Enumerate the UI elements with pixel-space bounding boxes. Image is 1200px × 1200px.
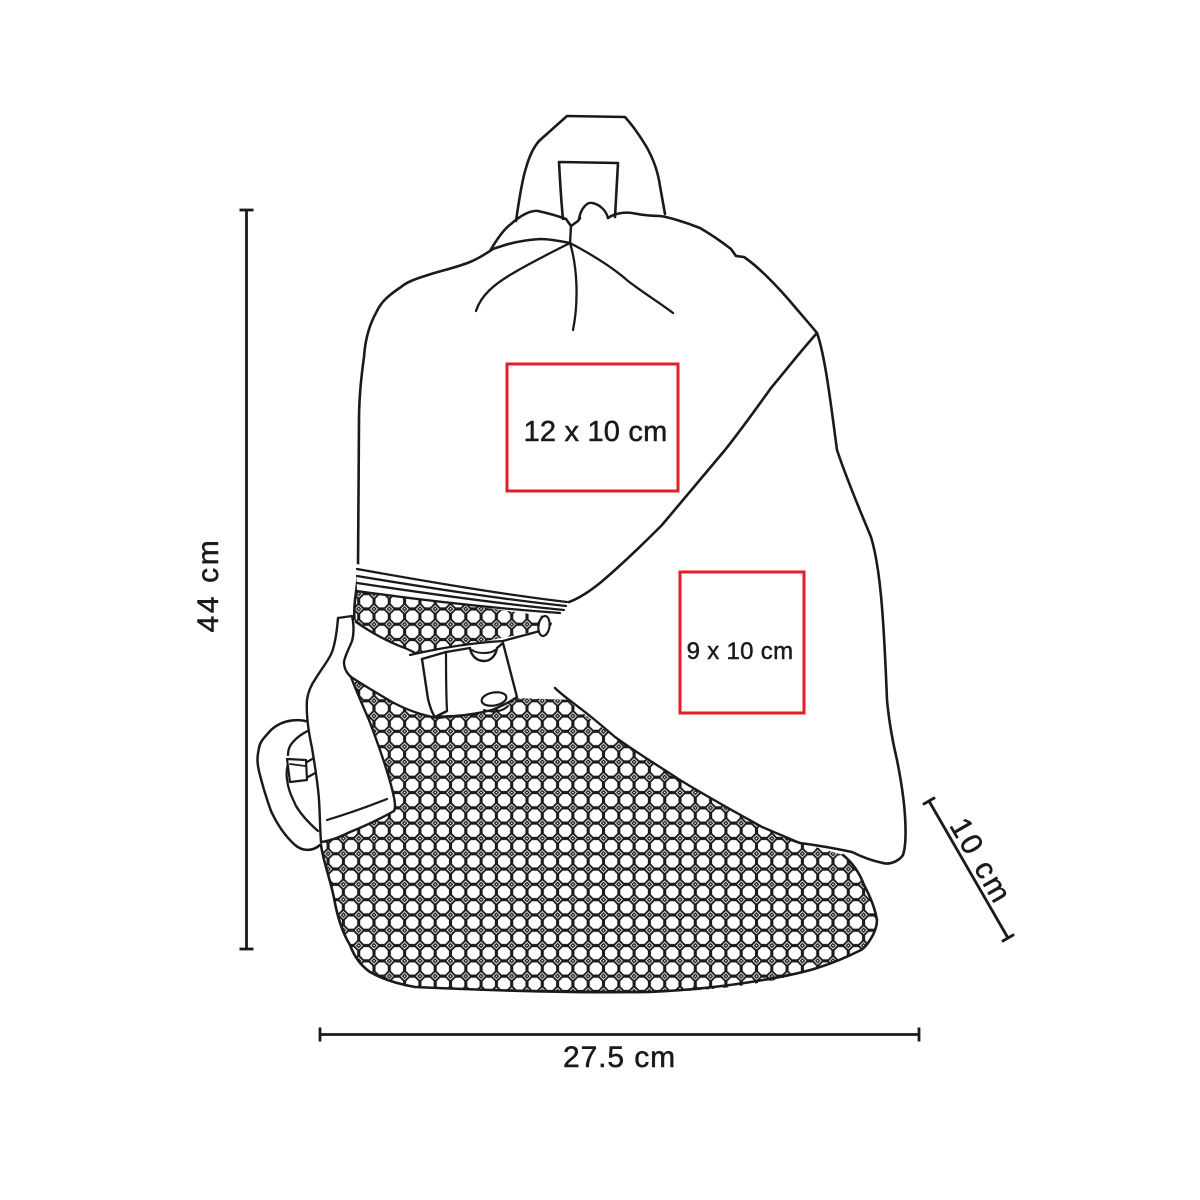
svg-text:44 cm: 44 cm: [192, 538, 225, 633]
svg-text:27.5 cm: 27.5 cm: [563, 1041, 676, 1074]
svg-text:9 x 10 cm: 9 x 10 cm: [687, 638, 794, 665]
svg-text:10 cm: 10 cm: [943, 812, 1018, 910]
svg-text:12 x 10 cm: 12 x 10 cm: [524, 416, 668, 448]
